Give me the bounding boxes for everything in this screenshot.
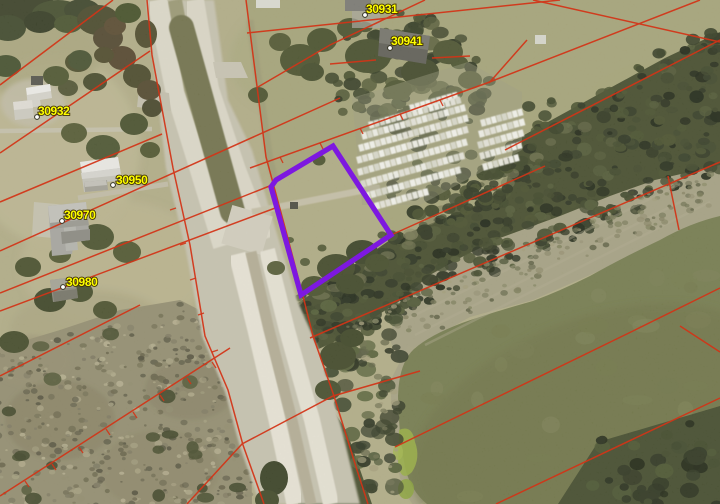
svg-text:30980: 30980: [66, 275, 98, 289]
svg-text:30970: 30970: [64, 208, 96, 222]
svg-text:30941: 30941: [391, 34, 423, 48]
svg-text:30931: 30931: [366, 2, 398, 16]
svg-text:30950: 30950: [116, 173, 148, 187]
svg-text:30932: 30932: [38, 104, 70, 118]
